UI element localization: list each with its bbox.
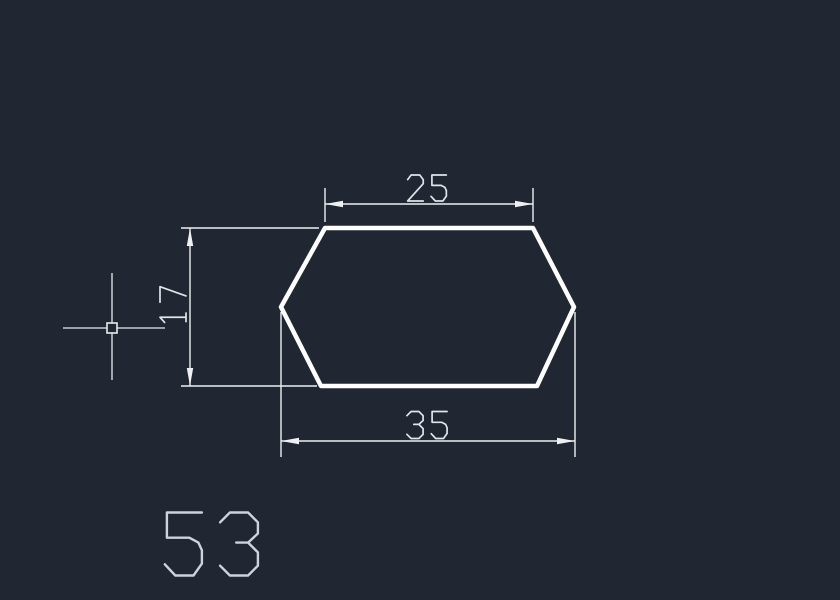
cad-drawing-area[interactable]: 25 35 17 53 — [0, 0, 840, 600]
hexagon-outline[interactable] — [281, 228, 574, 386]
dimension-top-width[interactable]: 25 — [325, 175, 533, 222]
part-number-label[interactable]: 53 — [165, 513, 258, 576]
cad-viewport[interactable]: 25 35 17 53 — [0, 0, 840, 600]
crosshair-cursor — [63, 273, 165, 380]
dimension-height[interactable]: 17 — [160, 228, 319, 386]
